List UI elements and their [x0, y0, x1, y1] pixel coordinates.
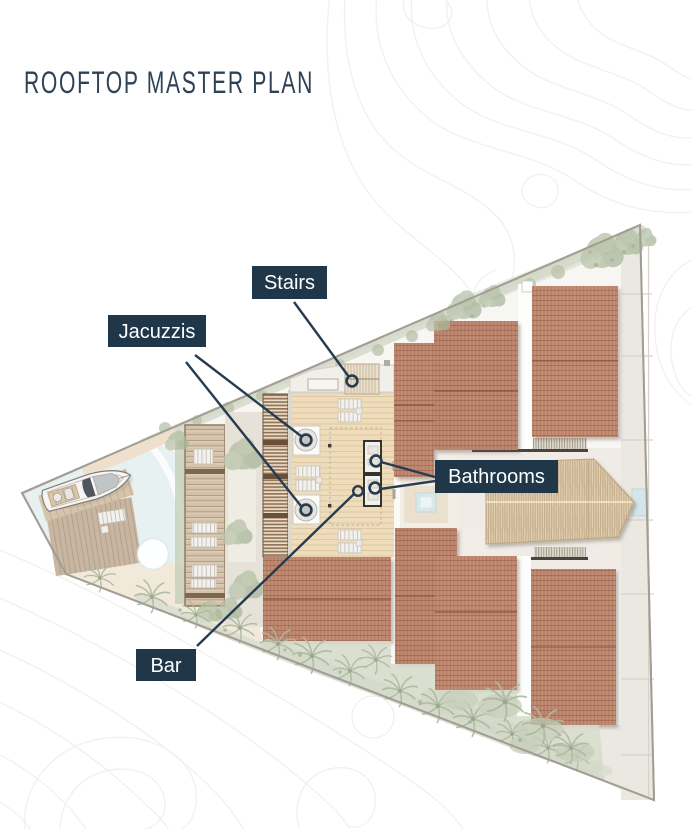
svg-text:Jacuzzis: Jacuzzis: [119, 321, 196, 343]
svg-text:Stairs: Stairs: [264, 272, 315, 294]
svg-text:Bathrooms: Bathrooms: [448, 466, 545, 488]
svg-text:ROOFTOP MASTER PLAN: ROOFTOP MASTER PLAN: [24, 65, 314, 100]
svg-text:Bar: Bar: [150, 655, 181, 677]
